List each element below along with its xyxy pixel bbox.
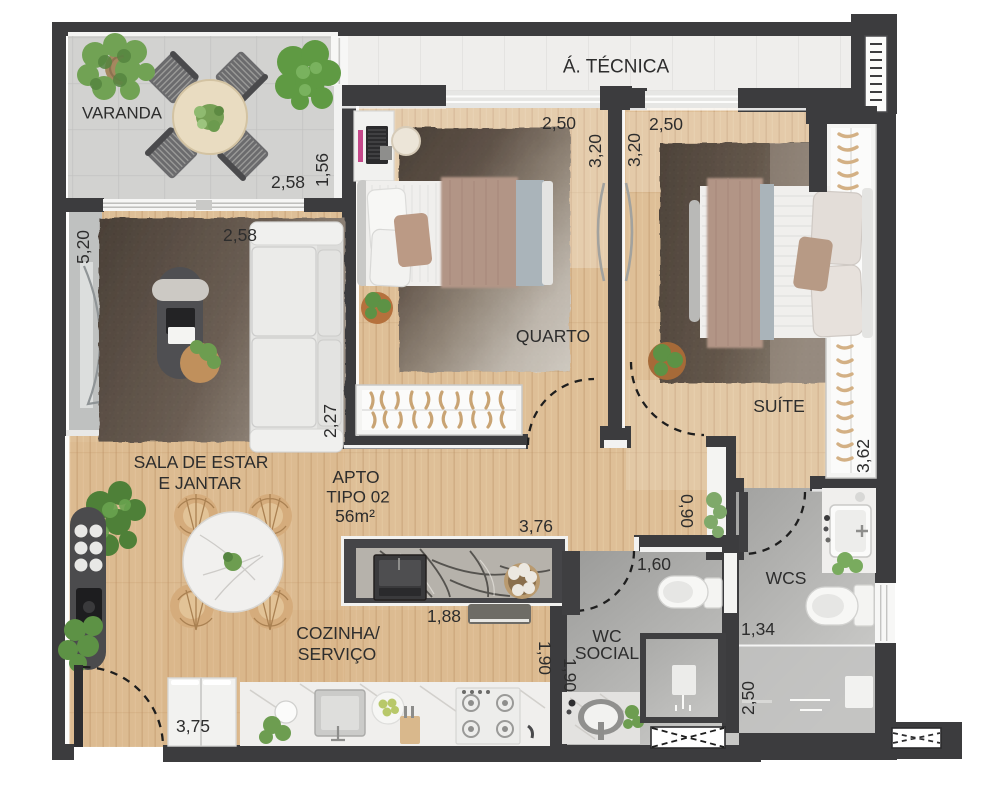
svg-text:QUARTO: QUARTO	[516, 326, 590, 346]
svg-text:E JANTAR: E JANTAR	[158, 473, 241, 493]
svg-text:2,50: 2,50	[738, 681, 758, 715]
svg-text:1,88: 1,88	[427, 606, 461, 626]
svg-text:3,62: 3,62	[853, 439, 873, 473]
svg-text:5,20: 5,20	[73, 230, 93, 264]
svg-text:VARANDA: VARANDA	[82, 104, 163, 123]
svg-text:3,76: 3,76	[519, 516, 553, 536]
svg-text:SUÍTE: SUÍTE	[753, 396, 805, 416]
svg-text:SERVIÇO: SERVIÇO	[298, 644, 376, 664]
svg-text:Á. TÉCNICA: Á. TÉCNICA	[563, 57, 670, 78]
svg-text:2,50: 2,50	[649, 114, 683, 134]
svg-text:2,50: 2,50	[542, 113, 576, 133]
svg-text:SOCIAL: SOCIAL	[575, 643, 639, 663]
svg-text:2,58: 2,58	[223, 225, 257, 245]
svg-text:56m²: 56m²	[335, 506, 375, 526]
svg-text:1,34: 1,34	[741, 619, 775, 639]
svg-text:2,58: 2,58	[271, 172, 305, 192]
svg-text:WCS: WCS	[766, 568, 807, 588]
svg-text:2,27: 2,27	[320, 404, 340, 438]
svg-text:1,60: 1,60	[637, 554, 671, 574]
svg-text:3,75: 3,75	[176, 716, 210, 736]
svg-text:1,90: 1,90	[560, 658, 580, 692]
svg-text:COZINHA/: COZINHA/	[296, 623, 380, 643]
svg-text:SALA DE ESTAR: SALA DE ESTAR	[134, 452, 269, 472]
svg-text:1,90: 1,90	[535, 641, 555, 675]
svg-text:APTO: APTO	[332, 467, 379, 487]
svg-text:3,20: 3,20	[585, 134, 605, 168]
svg-text:1,56: 1,56	[312, 153, 332, 187]
svg-text:TIPO 02: TIPO 02	[326, 488, 389, 507]
svg-text:0,90: 0,90	[677, 494, 697, 528]
svg-text:3,20: 3,20	[624, 133, 644, 167]
